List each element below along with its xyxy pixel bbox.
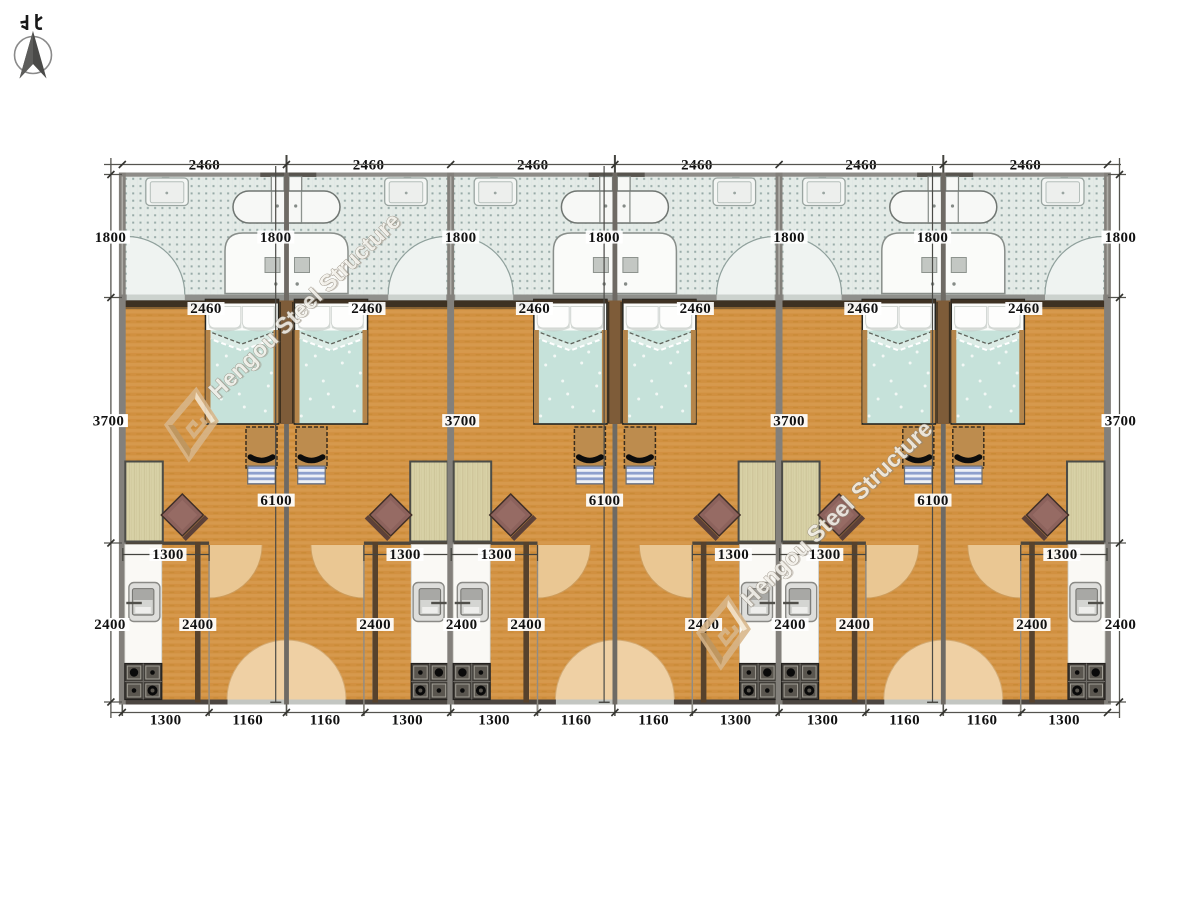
svg-text:1800: 1800 — [773, 230, 805, 246]
svg-text:3700: 3700 — [445, 413, 477, 429]
svg-text:1800: 1800 — [1105, 230, 1137, 246]
svg-text:2400: 2400 — [94, 617, 126, 633]
svg-text:2400: 2400 — [1105, 617, 1137, 633]
svg-text:3700: 3700 — [93, 413, 125, 429]
svg-text:3700: 3700 — [773, 413, 805, 429]
svg-text:1800: 1800 — [95, 230, 127, 246]
svg-text:3700: 3700 — [1105, 413, 1137, 429]
svg-text:1800: 1800 — [445, 230, 477, 246]
svg-text:2400: 2400 — [446, 617, 478, 633]
svg-text:2400: 2400 — [774, 617, 806, 633]
